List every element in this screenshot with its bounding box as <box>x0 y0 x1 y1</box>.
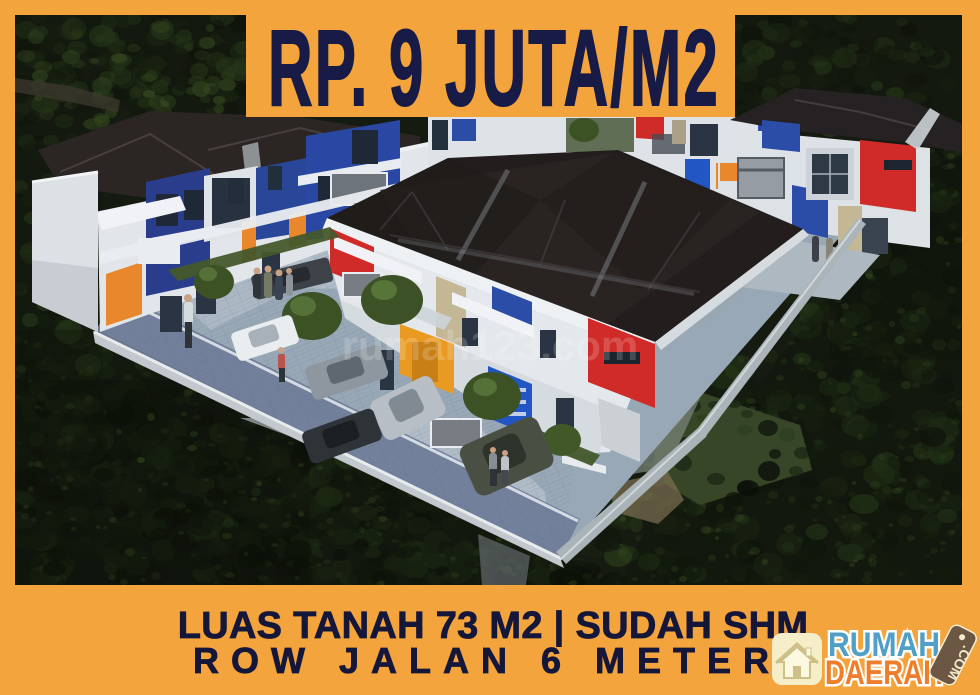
svg-text:RP. 9 JUTA/M2: RP. 9 JUTA/M2 <box>268 7 720 128</box>
svg-text:DAERAH: DAERAH <box>825 654 943 692</box>
svg-text:rumah123.com: rumah123.com <box>342 322 638 369</box>
svg-text:ROW JALAN 6 METER: ROW JALAN 6 METER <box>193 640 781 681</box>
